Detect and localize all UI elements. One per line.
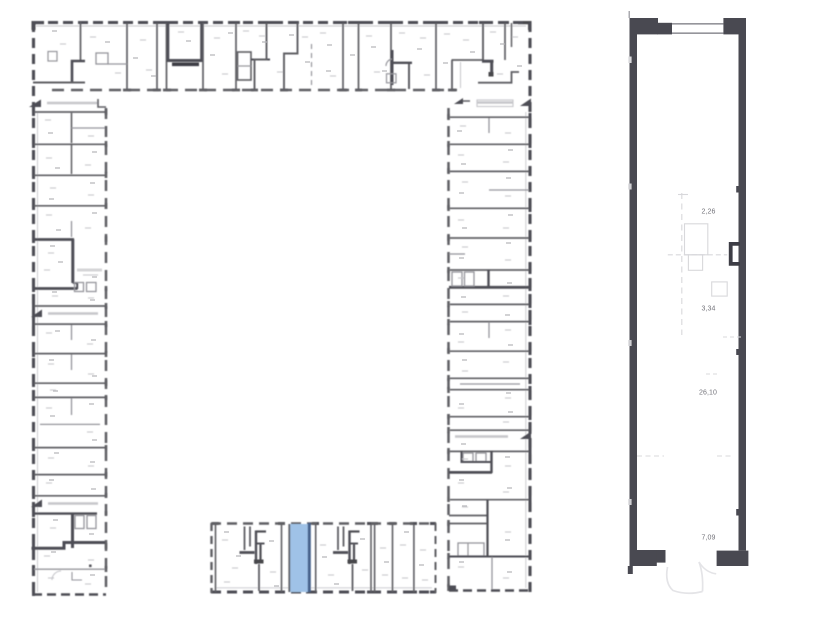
svg-text:7,09: 7,09 (702, 535, 716, 542)
svg-text:2,26: 2,26 (702, 209, 716, 216)
svg-text:26,10: 26,10 (699, 390, 717, 397)
svg-text:3,34: 3,34 (702, 306, 716, 313)
